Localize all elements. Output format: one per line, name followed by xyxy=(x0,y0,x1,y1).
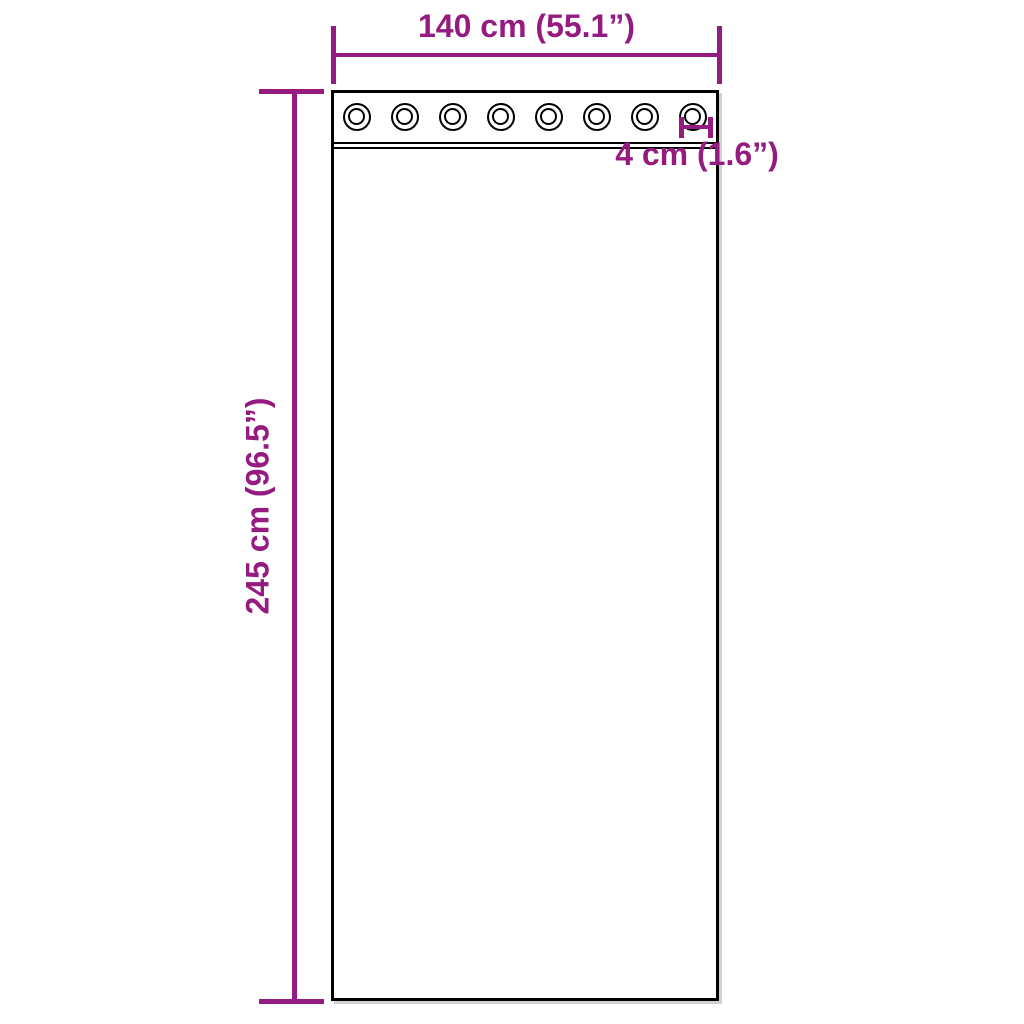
grommet xyxy=(583,103,611,131)
grommet-dimension-bracket-line xyxy=(681,125,711,129)
grommet-inner-ring xyxy=(396,108,413,125)
grommet-inner-ring xyxy=(684,108,701,125)
grommet-dimension-label: 4 cm (1.6”) xyxy=(615,136,779,173)
curtain-panel xyxy=(331,90,719,1001)
grommet xyxy=(487,103,515,131)
width-dimension-line xyxy=(334,53,719,57)
height-dimension-label: 245 cm (96.5”) xyxy=(240,397,277,614)
height-dimension-tick-top xyxy=(259,89,324,94)
grommet-inner-ring xyxy=(348,108,365,125)
grommet-inner-ring xyxy=(588,108,605,125)
grommet-dimension-tick-left xyxy=(679,117,684,138)
height-dimension-tick-bottom xyxy=(259,999,324,1004)
grommet xyxy=(343,103,371,131)
grommet-inner-ring xyxy=(636,108,653,125)
grommet xyxy=(535,103,563,131)
diagram-canvas: 140 cm (55.1”) 245 cm (96.5”) 4 cm (1.6”… xyxy=(0,0,1024,1024)
grommet-dimension-tick-right xyxy=(708,117,713,138)
height-dimension-line xyxy=(292,91,297,1002)
grommet xyxy=(439,103,467,131)
grommet xyxy=(631,103,659,131)
grommet-inner-ring xyxy=(444,108,461,125)
grommet-inner-ring xyxy=(540,108,557,125)
width-dimension-label: 140 cm (55.1”) xyxy=(334,8,719,45)
grommet xyxy=(391,103,419,131)
grommet-inner-ring xyxy=(492,108,509,125)
